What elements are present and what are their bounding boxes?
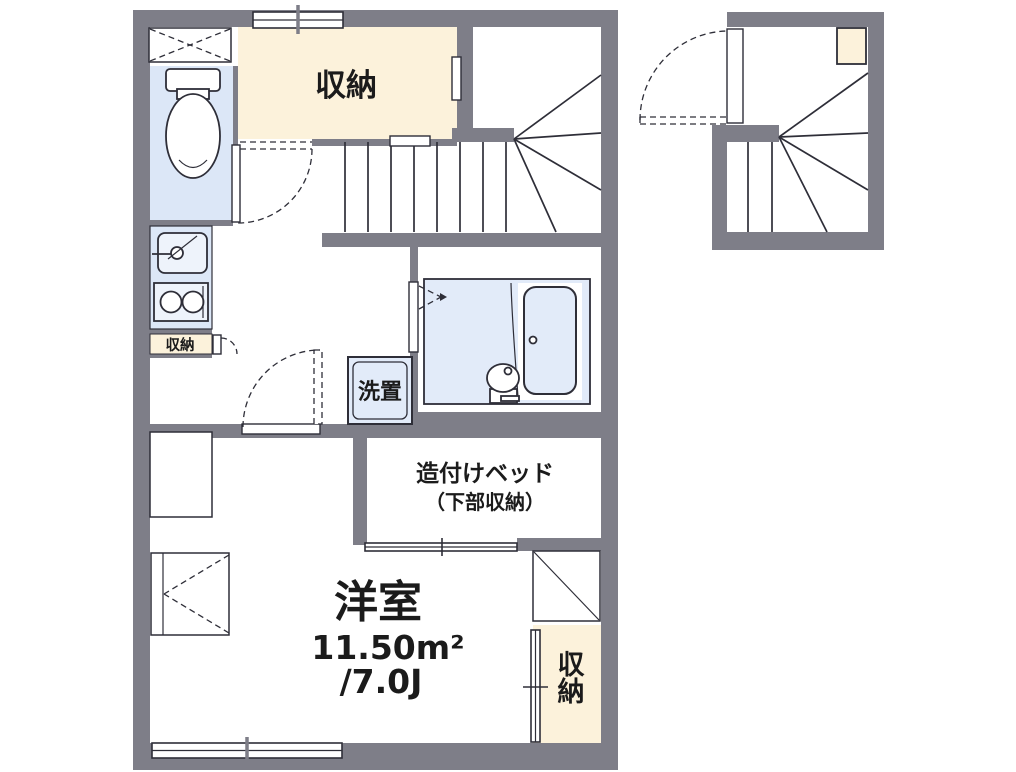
stove-burner-left: [161, 292, 182, 313]
entry-wall-stub: [712, 125, 779, 142]
bed-area: [365, 538, 517, 556]
entry-wall-right: [868, 12, 884, 250]
entry-door-leaf: [727, 29, 743, 123]
basin-faucet: [505, 368, 512, 375]
label-bed-line1: 造付けベッド: [416, 461, 554, 487]
wall-left: [133, 10, 150, 770]
entry-door-swing: [640, 31, 729, 120]
toilet-door-leaf: [232, 145, 240, 222]
stair-opening: [390, 136, 430, 146]
room-door-open: [314, 350, 322, 424]
entry-door: [640, 29, 743, 124]
stair-winder: [514, 133, 601, 139]
storage-strip-door-swing: [221, 338, 237, 354]
toilet-tank: [166, 69, 220, 91]
stair-winder: [514, 139, 601, 190]
room-door-swing: [243, 350, 320, 427]
label-storage-top: 収納: [315, 68, 377, 104]
wall-right: [601, 10, 618, 770]
toilet-bowl: [166, 94, 220, 178]
basin-handle: [501, 396, 519, 401]
main-unit: 収納 収納 洗置 造付けベッド （下部収納） 洋室 11.50m² /7.0J …: [133, 5, 618, 770]
label-storage-side: 収納: [166, 336, 195, 354]
room-door-leaf: [242, 424, 320, 434]
storage-stair-door: [452, 57, 461, 100]
wall-top: [133, 10, 618, 27]
stair-winder: [779, 73, 868, 137]
entry-wall-top: [727, 12, 884, 27]
label-room-tatami: /7.0J: [340, 662, 423, 701]
wall-stair-stub: [452, 128, 514, 142]
floor-plan: 収納 収納 洗置 造付けベッド （下部収納） 洋室 11.50m² /7.0J …: [0, 0, 1016, 772]
shoe-box: [837, 28, 866, 64]
washbasin: [487, 364, 519, 392]
vent-box: [149, 28, 231, 62]
toilet-fixture: [166, 69, 220, 178]
wall-storage-bottom: [312, 139, 457, 146]
wall-kitchen-top: [150, 220, 233, 226]
staircase-entry: [748, 73, 868, 232]
stair-winder: [779, 133, 868, 137]
label-washer: 洗置: [358, 380, 402, 405]
room-door: [242, 350, 322, 434]
wall-bed-left: [353, 430, 367, 545]
toilet-door-swing: [238, 149, 312, 223]
stove-burner-right: [183, 292, 204, 313]
entry-wall-bottom: [712, 232, 884, 250]
floor-plan-canvas: 収納 収納 洗置 造付けベッド （下部収納） 洋室 11.50m² /7.0J …: [0, 0, 1016, 772]
kitchen-counter: [150, 226, 212, 329]
entry-unit: [640, 12, 884, 250]
storage-strip-door-leaf: [213, 335, 221, 354]
bathroom: [409, 279, 590, 404]
wall-stair-bottom: [322, 233, 618, 247]
bathtub-drain: [530, 337, 537, 344]
toilet-door: [232, 142, 312, 223]
label-bed-line2: （下部収納）: [425, 490, 545, 514]
furniture-box: [150, 432, 212, 517]
stair-winder: [514, 139, 556, 232]
wall-toilet-right: [233, 66, 238, 145]
label-storage-bottom: 収納: [553, 650, 585, 704]
wall-bed-stub: [517, 538, 618, 551]
label-room-name: 洋室: [334, 577, 422, 628]
stair-winder: [514, 75, 601, 139]
bath-door: [409, 282, 418, 352]
